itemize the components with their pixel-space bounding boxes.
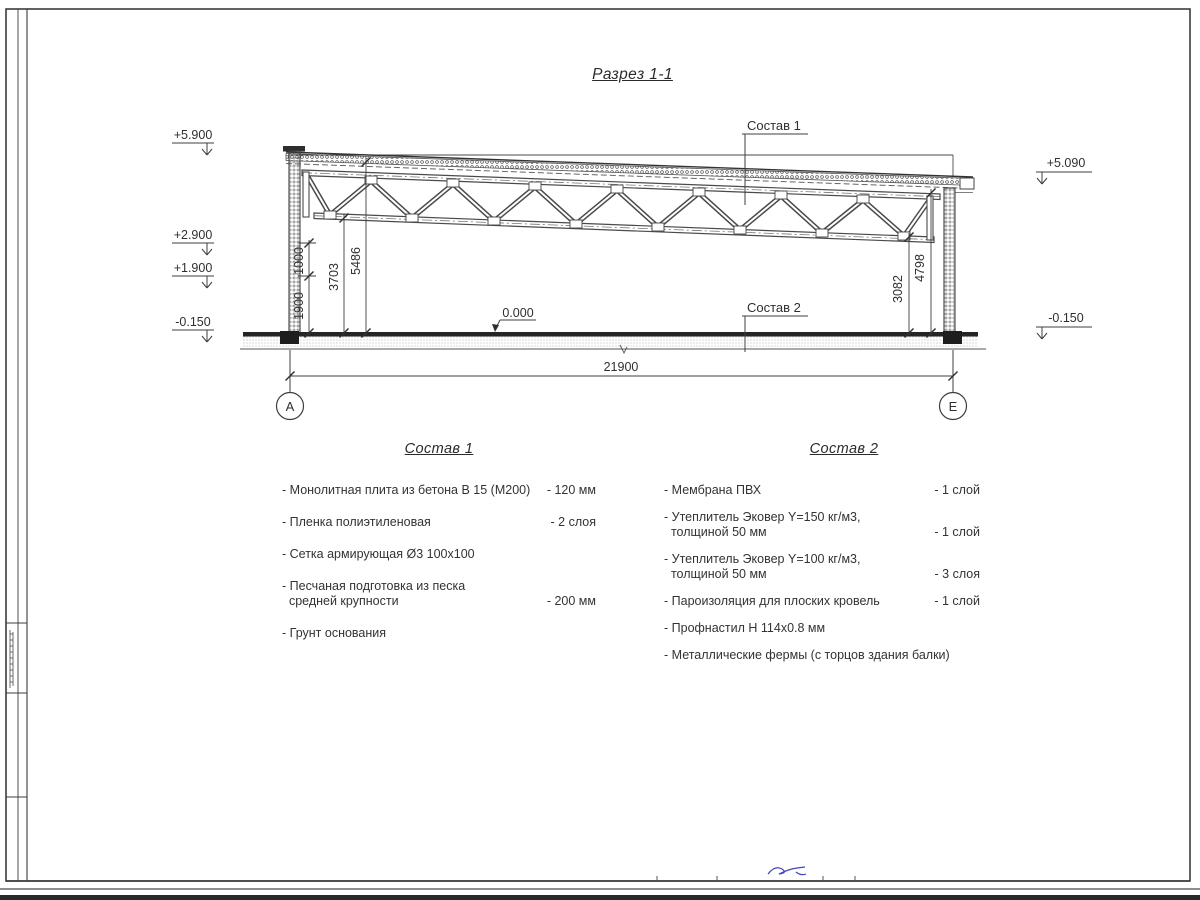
blue-pen-mark — [768, 867, 806, 875]
overall-dim-text: 21900 — [604, 360, 639, 374]
interior-dimension-texts: 1000 1900 3703 5486 3082 4798 — [292, 247, 927, 320]
material-name: - Сетка армирующая Ø3 100х100 — [282, 547, 475, 562]
elevation-mark-1900 — [172, 276, 214, 288]
truss-left-post — [303, 172, 309, 217]
grid-axis-e-label: Е — [949, 399, 958, 414]
list-item: - Сетка армирующая Ø3 100х100 — [282, 547, 596, 562]
composition-list-2: Состав 2 - Мембрана ПВХ - 1 слой - Утепл… — [664, 441, 980, 675]
material-qty: - 3 слоя — [935, 567, 980, 582]
list-item: - Песчаная подготовка из песка средней к… — [282, 579, 596, 609]
elev-1900-text: +1.900 — [174, 261, 213, 275]
material-name: - Пароизоляция для плоских кровель — [664, 594, 880, 609]
list-item: - Монолитная плита из бетона В 15 (М200)… — [282, 483, 596, 498]
scanned-drawing-sheet: 1000 1900 3703 5486 3082 4798 — [0, 0, 1200, 900]
floor-level-mark: 0.000 — [492, 306, 536, 332]
elevation-mark-2900 — [172, 243, 214, 255]
material-qty: - 2 слоя — [551, 515, 596, 530]
material-name: - Металлические фермы (с торцов здания б… — [664, 648, 950, 663]
elev-2900-text: +2.900 — [174, 228, 213, 242]
material-name: - Утеплитель Эковер Y=150 кг/м3, толщино… — [664, 510, 860, 540]
material-name: - Песчаная подготовка из песка средней к… — [282, 579, 465, 609]
elev-5090-text: +5.090 — [1047, 156, 1086, 170]
dim-3082: 3082 — [891, 275, 905, 303]
list-item: - Грунт основания — [282, 626, 596, 641]
grid-axes: А Е — [277, 393, 967, 420]
material-name: - Мембрана ПВХ — [664, 483, 761, 498]
list-item: - Металлические фермы (с торцов здания б… — [664, 648, 980, 663]
page-title: Разрез 1-1 — [545, 66, 720, 84]
material-qty: - 1 слой — [934, 483, 980, 498]
elev-minus150-left-text: -0.150 — [175, 315, 210, 329]
elev-minus150-right-text: -0.150 — [1048, 311, 1083, 325]
material-qty: - 200 мм — [547, 594, 596, 609]
elevation-mark-minus150-left — [172, 330, 214, 342]
elevation-texts-right: +5.090 -0.150 — [1047, 156, 1086, 325]
roof-insulation-band — [286, 154, 973, 186]
composition1-heading: Состав 1 — [282, 441, 596, 457]
list-item: - Пароизоляция для плоских кровель - 1 с… — [664, 594, 980, 609]
material-name: - Профнастил Н 114х0.8 мм — [664, 621, 825, 636]
dim-1900: 1900 — [292, 292, 306, 320]
dim-4798: 4798 — [913, 254, 927, 282]
material-name: - Утеплитель Эковер Y=100 кг/м3, толщино… — [664, 552, 860, 582]
section-drawing-canvas: 1000 1900 3703 5486 3082 4798 — [0, 0, 1200, 900]
material-qty: - 120 мм — [547, 483, 596, 498]
list-item: - Мембрана ПВХ - 1 слой — [664, 483, 980, 498]
sostav2-callout: Состав 2 — [747, 300, 801, 315]
list-item: - Профнастил Н 114х0.8 мм — [664, 621, 980, 636]
right-footing — [943, 331, 962, 344]
elevation-mark-5900 — [172, 143, 214, 155]
composition2-heading: Состав 2 — [708, 441, 980, 457]
composition-leaders — [742, 134, 808, 352]
elev-5900-text: +5.900 — [174, 128, 213, 142]
roof-edge-cap — [960, 178, 974, 189]
material-name: - Пленка полиэтиленовая — [282, 515, 431, 530]
composition-list-1: Состав 1 - Монолитная плита из бетона В … — [282, 441, 596, 658]
floor-level-text: 0.000 — [502, 306, 533, 320]
left-footing — [280, 331, 299, 344]
material-qty: - 1 слой — [934, 594, 980, 609]
grid-axis-a-label: А — [286, 399, 295, 414]
elevation-mark-5090 — [1036, 172, 1092, 184]
list-item: - Пленка полиэтиленовая - 2 слоя — [282, 515, 596, 530]
elevation-mark-minus150-right — [1036, 327, 1092, 339]
truss-right-post — [927, 196, 933, 240]
dim-5486: 5486 — [349, 247, 363, 275]
list-item: - Утеплитель Эковер Y=150 кг/м3, толщино… — [664, 510, 980, 540]
material-name: - Грунт основания — [282, 626, 386, 641]
title-block-edge — [0, 867, 1200, 900]
dim-1000: 1000 — [292, 247, 306, 275]
material-qty: - 1 слой — [934, 525, 980, 540]
sostav1-callout: Состав 1 — [747, 118, 801, 133]
side-stamp-illegible-text — [10, 630, 13, 688]
dim-3703: 3703 — [327, 263, 341, 291]
material-name: - Монолитная плита из бетона В 15 (М200) — [282, 483, 530, 498]
elevation-texts-left: +5.900 +2.900 +1.900 -0.150 — [174, 128, 213, 329]
list-item: - Утеплитель Эковер Y=100 кг/м3, толщино… — [664, 552, 980, 582]
elevation-marks-left — [172, 143, 214, 342]
right-wall — [944, 188, 955, 333]
floor-slab — [240, 331, 986, 353]
